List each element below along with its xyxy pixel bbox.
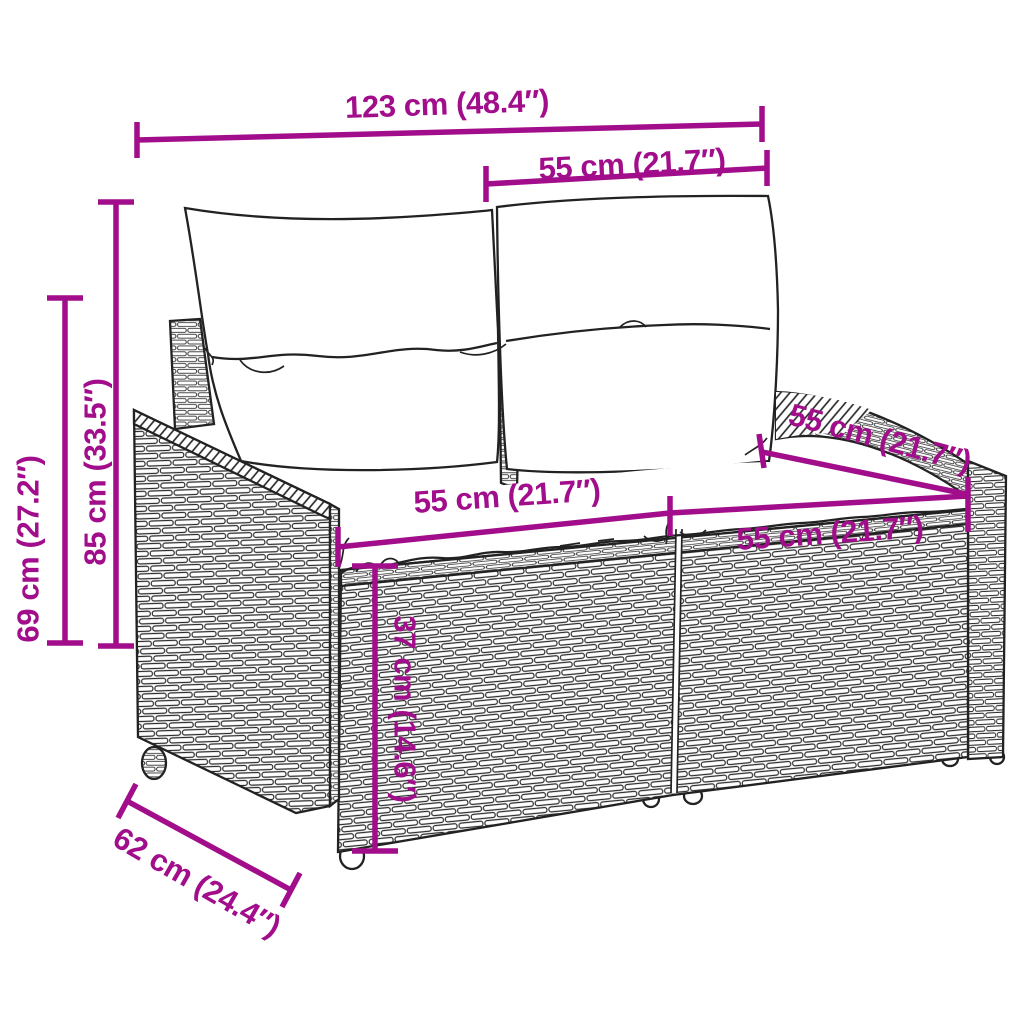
dim-label-overall-width: 123 cm (48.4″): [345, 85, 550, 123]
back-cushion-right: [460, 196, 778, 472]
sofa-base: [338, 510, 968, 869]
dim-label-total-height: 85 cm (33.5″): [80, 378, 111, 565]
dim-label-armrest-height: 69 cm (27.2″): [13, 455, 44, 642]
diagram-stage: 123 cm (48.4″) 55 cm (21.7″) 85 cm (33.5…: [0, 0, 1024, 1024]
left-armrest: [134, 410, 339, 813]
back-cushion-left: [185, 208, 499, 470]
foot: [142, 747, 166, 779]
dim-label-seat-height: 37 cm (14.6″): [390, 615, 421, 802]
right-side-panel: [968, 461, 1006, 764]
